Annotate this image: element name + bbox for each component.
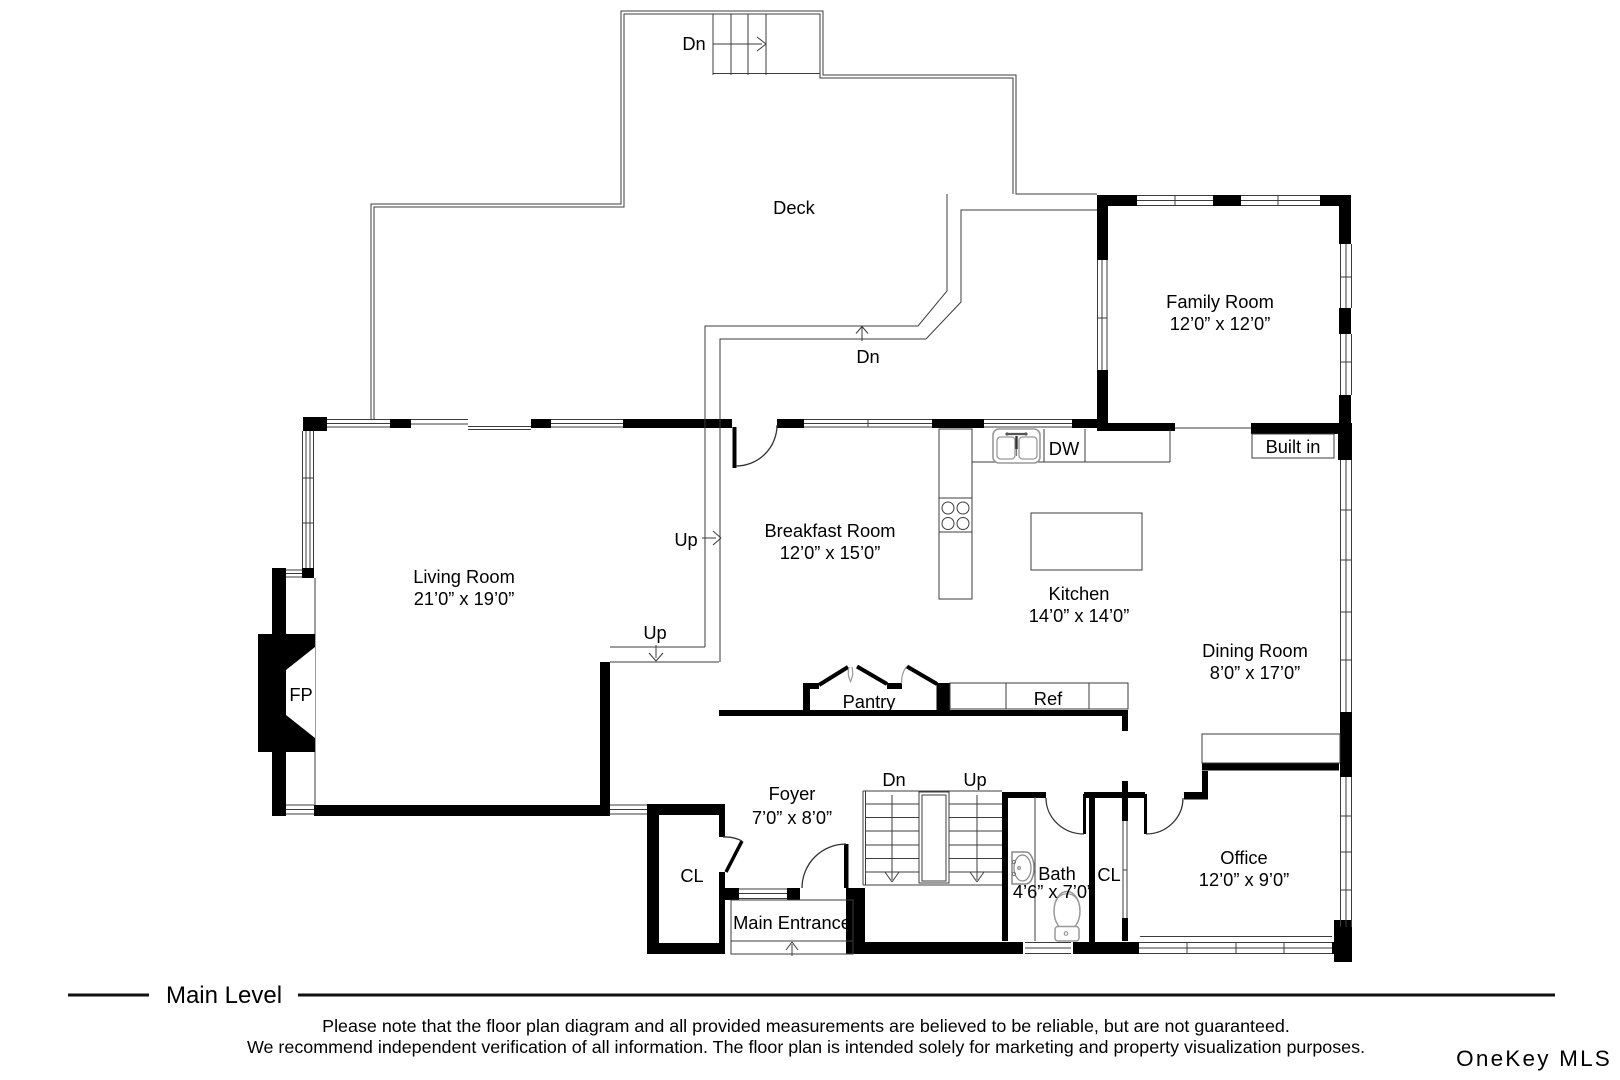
svg-text:OneKey MLS: OneKey MLS — [1456, 1046, 1612, 1071]
svg-text:We recommend independent verif: We recommend independent verification of… — [247, 1037, 1365, 1057]
svg-text:Pantry: Pantry — [843, 691, 897, 712]
svg-text:Built in: Built in — [1266, 436, 1321, 457]
svg-text:Kitchen: Kitchen — [1049, 583, 1110, 604]
svg-text:CL: CL — [680, 865, 703, 886]
svg-text:DW: DW — [1049, 438, 1080, 459]
svg-text:8’0” x 17’0”: 8’0” x 17’0” — [1210, 662, 1300, 683]
svg-text:14’0” x 14’0”: 14’0” x 14’0” — [1029, 605, 1130, 626]
svg-text:12’0” x 9’0”: 12’0” x 9’0” — [1199, 869, 1289, 890]
svg-text:Ref: Ref — [1034, 688, 1063, 709]
svg-text:Dn: Dn — [682, 33, 705, 54]
svg-text:7’0” x 8’0”: 7’0” x 8’0” — [752, 807, 832, 828]
svg-text:Please note that the floor pla: Please note that the floor plan diagram … — [322, 1016, 1290, 1036]
svg-text:21’0” x 19’0”: 21’0” x 19’0” — [414, 588, 515, 609]
svg-text:Up: Up — [643, 622, 666, 643]
svg-text:Living Room: Living Room — [413, 566, 515, 587]
svg-text:Dining Room: Dining Room — [1202, 640, 1308, 661]
svg-text:Office: Office — [1220, 847, 1267, 868]
svg-text:Up: Up — [963, 769, 986, 790]
svg-text:Deck: Deck — [773, 197, 816, 218]
svg-text:Foyer: Foyer — [769, 783, 816, 804]
svg-text:12’0” x 15’0”: 12’0” x 15’0” — [780, 542, 881, 563]
svg-text:Main Entrance: Main Entrance — [733, 912, 851, 933]
svg-text:Breakfast Room: Breakfast Room — [764, 520, 895, 541]
svg-text:FP: FP — [289, 684, 312, 705]
svg-text:Dn: Dn — [856, 346, 879, 367]
svg-text:4’6” x 7’0”: 4’6” x 7’0” — [1013, 881, 1093, 902]
svg-text:Dn: Dn — [882, 769, 905, 790]
svg-text:CL: CL — [1097, 864, 1120, 885]
svg-text:12’0” x 12’0”: 12’0” x 12’0” — [1170, 313, 1271, 334]
svg-text:Main Level: Main Level — [166, 982, 282, 1009]
svg-text:Up: Up — [674, 529, 697, 550]
svg-text:Family Room: Family Room — [1166, 291, 1274, 312]
